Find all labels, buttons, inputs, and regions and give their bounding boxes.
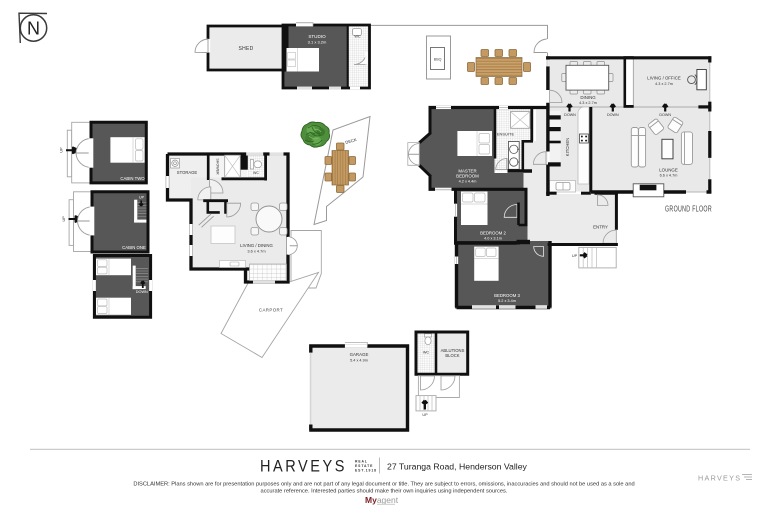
svg-text:HARVEYS: HARVEYS — [260, 457, 347, 476]
svg-text:STUDIO: STUDIO — [308, 34, 326, 39]
svg-text:BLOCK: BLOCK — [445, 353, 459, 358]
svg-text:REAL: REAL — [355, 460, 368, 464]
svg-text:GROUND FLOOR: GROUND FLOOR — [665, 205, 712, 214]
svg-text:SHOWER: SHOWER — [216, 158, 220, 175]
svg-text:BEDROOM 3: BEDROOM 3 — [494, 293, 520, 298]
svg-text:N: N — [27, 19, 40, 39]
svg-text:GARAGE: GARAGE — [350, 352, 369, 357]
svg-text:3.6 x 4.7m: 3.6 x 4.7m — [247, 249, 265, 254]
svg-text:STORAGE: STORAGE — [177, 170, 198, 175]
svg-text:5.4 x 4.9m: 5.4 x 4.9m — [350, 358, 368, 362]
svg-text:ENTRY: ENTRY — [593, 225, 608, 230]
svg-text:LOUNGE: LOUNGE — [659, 167, 678, 172]
svg-text:BEDROOM: BEDROOM — [456, 174, 479, 179]
svg-text:DOWN: DOWN — [607, 113, 619, 117]
svg-text:HARVEYS: HARVEYS — [698, 474, 741, 483]
svg-text:WC: WC — [423, 351, 430, 355]
svg-text:4.3 x 2.7m: 4.3 x 2.7m — [655, 82, 673, 86]
svg-text:CABIN TWO: CABIN TWO — [120, 176, 145, 181]
svg-text:27 Turanga Road, Henderson Val: 27 Turanga Road, Henderson Valley — [387, 462, 528, 472]
svg-text:accurate reference. Interested: accurate reference. Interested parties s… — [261, 489, 508, 495]
svg-text:UP: UP — [60, 147, 64, 153]
svg-text:4.2 x 4.4m: 4.2 x 4.4m — [459, 180, 477, 184]
svg-text:UP: UP — [572, 254, 578, 258]
svg-text:WC: WC — [253, 171, 259, 175]
svg-text:DOWN: DOWN — [659, 113, 671, 117]
svg-text:CABIN ONE: CABIN ONE — [122, 245, 146, 250]
svg-text:DOWN: DOWN — [564, 113, 576, 117]
svg-text:4.3 x 2.7m: 4.3 x 2.7m — [579, 101, 597, 105]
svg-text:UP: UP — [139, 196, 145, 200]
svg-text:DISCLAIMER: Plans shown are fo: DISCLAIMER: Plans shown are for presenta… — [133, 482, 634, 488]
svg-text:DOWN: DOWN — [136, 290, 148, 294]
svg-text:DINING: DINING — [580, 95, 596, 100]
svg-text:BBQ: BBQ — [434, 57, 442, 61]
svg-text:CARPORT: CARPORT — [259, 308, 283, 313]
svg-text:6.6 x 4.7m: 6.6 x 4.7m — [660, 174, 678, 178]
svg-text:LIVING / DINING: LIVING / DINING — [240, 243, 273, 248]
svg-text:ENSUITE: ENSUITE — [497, 132, 515, 137]
svg-text:5.2 x 3.4m: 5.2 x 3.4m — [498, 299, 516, 303]
svg-text:UP: UP — [422, 413, 428, 417]
svg-text:KITCHEN: KITCHEN — [565, 138, 570, 156]
svg-text:SHED: SHED — [238, 46, 253, 52]
svg-text:BEDROOM 2: BEDROOM 2 — [480, 231, 506, 236]
svg-text:UP: UP — [62, 216, 66, 222]
svg-text:WC: WC — [354, 35, 361, 39]
svg-text:3.1 x 3.2m: 3.1 x 3.2m — [308, 40, 327, 45]
svg-text:Myagent: Myagent — [365, 495, 399, 505]
svg-text:LIVING / OFFICE: LIVING / OFFICE — [647, 76, 681, 81]
svg-text:EST.1918: EST.1918 — [355, 469, 377, 473]
svg-text:ESTATE: ESTATE — [355, 464, 373, 468]
svg-text:4.0 x 3.1m: 4.0 x 3.1m — [484, 237, 502, 241]
